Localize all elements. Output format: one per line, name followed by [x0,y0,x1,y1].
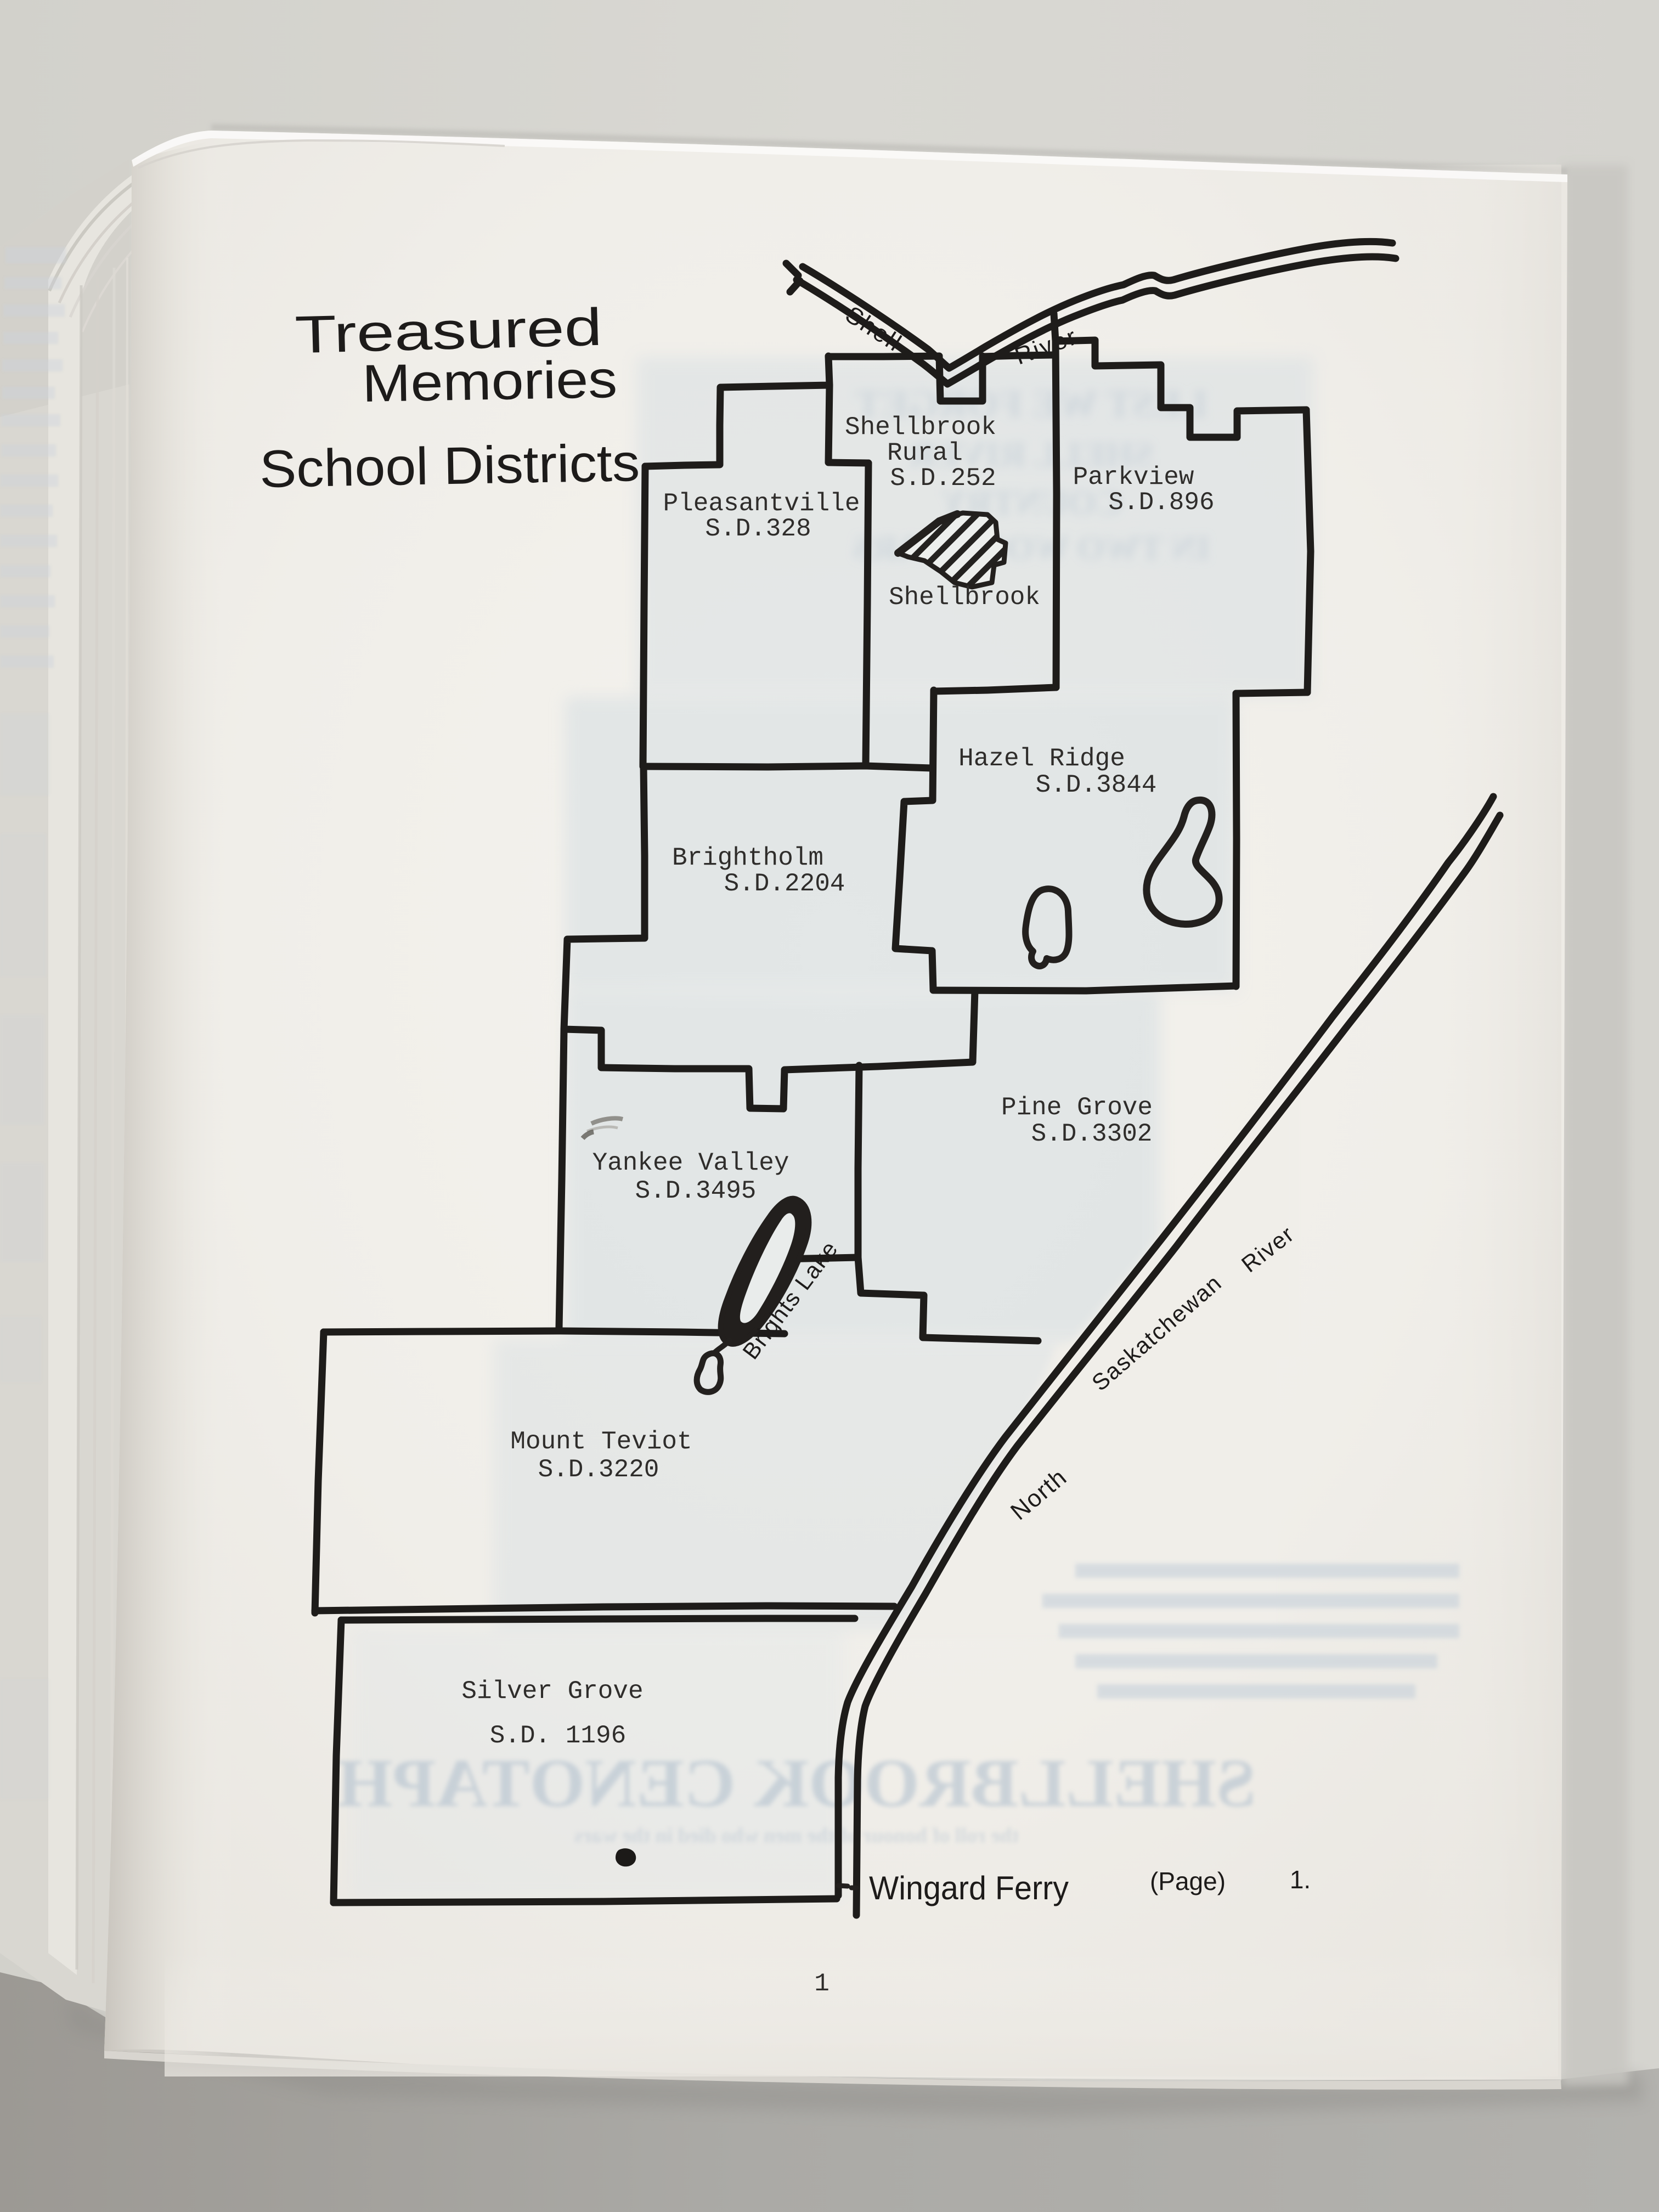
svg-text:S.D.328: S.D.328 [705,515,811,543]
svg-text:S.D.2204: S.D.2204 [724,870,845,898]
svg-text:S.D.3844: S.D.3844 [1036,771,1157,799]
svg-text:Mount Teviot: Mount Teviot [510,1427,692,1456]
svg-text:1: 1 [814,1970,830,1998]
svg-text:S.D.252: S.D.252 [890,464,996,493]
svg-text:S.D.3220: S.D.3220 [538,1455,659,1484]
svg-text:Pleasantville: Pleasantville [663,489,860,518]
svg-text:Brightholm: Brightholm [672,844,823,872]
svg-text:S.D.896: S.D.896 [1108,488,1214,517]
svg-text:Memories: Memories [362,350,618,413]
svg-text:1.: 1. [1290,1865,1311,1894]
svg-text:Rural: Rural [887,439,963,467]
svg-text:S.D. 1196: S.D. 1196 [490,1722,626,1750]
svg-text:Shellbrook: Shellbrook [845,413,996,442]
svg-text:Silver Grove: Silver Grove [461,1677,643,1706]
svg-text:S.D.3302: S.D.3302 [1031,1120,1153,1148]
svg-text:Shellbrook: Shellbrook [889,583,1040,612]
svg-text:Wingard Ferry: Wingard Ferry [869,1870,1069,1906]
svg-text:(Page): (Page) [1150,1867,1226,1895]
svg-text:Yankee Valley: Yankee Valley [592,1149,789,1177]
svg-text:Parkview: Parkview [1073,463,1194,492]
svg-text:S.D.3495: S.D.3495 [635,1177,757,1205]
svg-text:the roll of honour of the men: the roll of honour of the men who died i… [574,1824,1019,1847]
svg-text:Hazel Ridge: Hazel Ridge [958,744,1125,773]
svg-text:School Districts: School Districts [259,433,640,499]
svg-text:SHELLBROOK CENOTAPH: SHELLBROOK CENOTAPH [337,1746,1256,1821]
svg-text:Pine Grove: Pine Grove [1001,1093,1153,1122]
